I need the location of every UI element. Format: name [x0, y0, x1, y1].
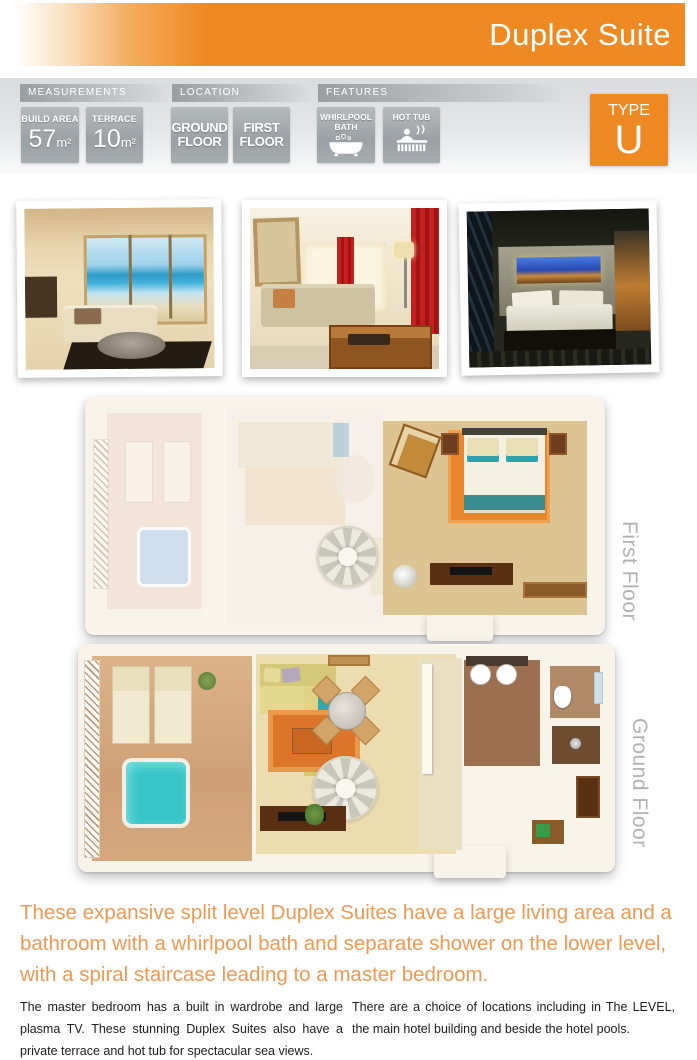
first-floor-label: First Floor [617, 521, 641, 636]
plan2-lounger-2 [154, 666, 192, 744]
badge-hot-tub: HOT TUB [383, 107, 440, 163]
plan2-closet-doors [422, 664, 432, 774]
build-area-value: 57m² [21, 124, 79, 158]
photo2-curtain-right [411, 208, 439, 334]
body-text-right: There are a choice of locations includin… [352, 996, 675, 1040]
photo3-headboard-art [517, 256, 601, 284]
plan2-sink-1 [470, 664, 491, 685]
brochure-page: Duplex Suite MEASUREMENTS LOCATION FEATU… [0, 0, 697, 1060]
plan1-terrace-railing [93, 439, 109, 589]
plan1-pillow-left [467, 438, 499, 462]
photo2-wall-art [253, 217, 301, 286]
plan2-terrace-plant [198, 672, 216, 690]
page-header: Duplex Suite [0, 3, 685, 66]
plan1-floor-vase [393, 565, 417, 588]
plan1-wall-notch [427, 613, 493, 641]
badge-ground-floor: GROUND FLOOR [171, 107, 228, 163]
hot-tub-icon [383, 125, 440, 157]
photo2-lamp-pole [404, 253, 407, 308]
photo2-table-tray [348, 334, 390, 345]
photo2-coffee-table [329, 325, 431, 369]
plan1-spiral-center [338, 547, 358, 567]
section-location: LOCATION [172, 84, 311, 102]
plan2-shower-drain [570, 738, 581, 749]
badge-whirlpool-bath: WHIRLPOOLBATH [317, 107, 375, 163]
plan1-lounger-ghost-2 [163, 441, 191, 503]
photo2-lamp-shade [394, 242, 415, 258]
photo3-foot-bench [503, 329, 616, 351]
plan1-bench [523, 582, 587, 598]
photo3-wall-glow [614, 230, 650, 330]
photo-lounge-red-curtains [242, 200, 447, 377]
plan2-cushion-gray [281, 667, 301, 683]
section-features: FEATURES [318, 84, 561, 102]
plan1-nightstand-right [549, 433, 567, 455]
terrace-value: 10m² [86, 124, 143, 158]
terrace-label: TERRACE [86, 114, 143, 124]
photo3-floor [469, 349, 651, 368]
ground-floor-label: Ground Floor [627, 718, 651, 858]
plan2-dining-table [328, 692, 366, 730]
plan2-cushion-yellow [263, 667, 280, 683]
photo2-cushion-orange [273, 289, 296, 308]
plan2-sink-2 [496, 664, 517, 685]
plan2-window [594, 672, 603, 704]
photo1-desk [25, 276, 57, 318]
body-text-left: The master bedroom has a built in wardro… [20, 996, 343, 1060]
plan1-bed-runner [464, 495, 545, 510]
plan2-luggage-green [536, 824, 550, 837]
type-badge: TYPE U [590, 94, 668, 166]
photo-master-bedroom [459, 200, 660, 375]
plan1-spiral-staircase [317, 526, 378, 587]
section-measurements: MEASUREMENTS [20, 84, 168, 102]
photo1-scene [24, 207, 214, 370]
intro-paragraph: These expansive split level Duplex Suite… [20, 897, 682, 990]
photo-living-room-sea-view [16, 199, 223, 378]
photo3-bed [507, 304, 613, 332]
plan1-pillow-right [506, 438, 538, 462]
photo3-side-column [467, 211, 495, 367]
photo3-scene [467, 208, 652, 367]
plan1-rug-ghost [245, 467, 345, 525]
plan2-lounger-1 [112, 666, 150, 744]
plan2-wardrobe [576, 776, 600, 818]
bathtub-icon [317, 134, 375, 162]
badge-build-area: BUILD AREA 57m² [21, 107, 79, 163]
plan2-terrace-railing [84, 660, 100, 858]
plan2-console-table [328, 655, 370, 666]
badge-terrace: TERRACE 10m² [86, 107, 143, 163]
ground-floor-plan [78, 644, 615, 872]
plan2-spiral-center [335, 778, 356, 799]
badge-first-floor: FIRST FLOOR [233, 107, 290, 163]
plan1-blue-cushion-ghost [333, 423, 349, 457]
plan1-sofa-ghost [235, 419, 347, 471]
plan1-hot-tub-ghost [137, 527, 191, 587]
plan2-toilet [554, 686, 571, 708]
build-area-label: BUILD AREA [21, 114, 79, 124]
first-floor-plan [85, 397, 605, 635]
page-title: Duplex Suite [489, 17, 685, 53]
photo1-cushion [74, 308, 101, 324]
photo2-scene [250, 208, 439, 369]
plan1-nightstand-left [441, 433, 459, 455]
plan2-hot-tub [122, 758, 190, 828]
plan2-plant [305, 804, 324, 825]
plan1-chairs-ghost [335, 455, 375, 503]
plan1-bed-headboard [462, 428, 547, 435]
type-label: TYPE [590, 102, 668, 119]
plan1-lounger-ghost-1 [125, 441, 153, 503]
type-value: U [590, 119, 668, 161]
plan1-tv [450, 567, 492, 575]
